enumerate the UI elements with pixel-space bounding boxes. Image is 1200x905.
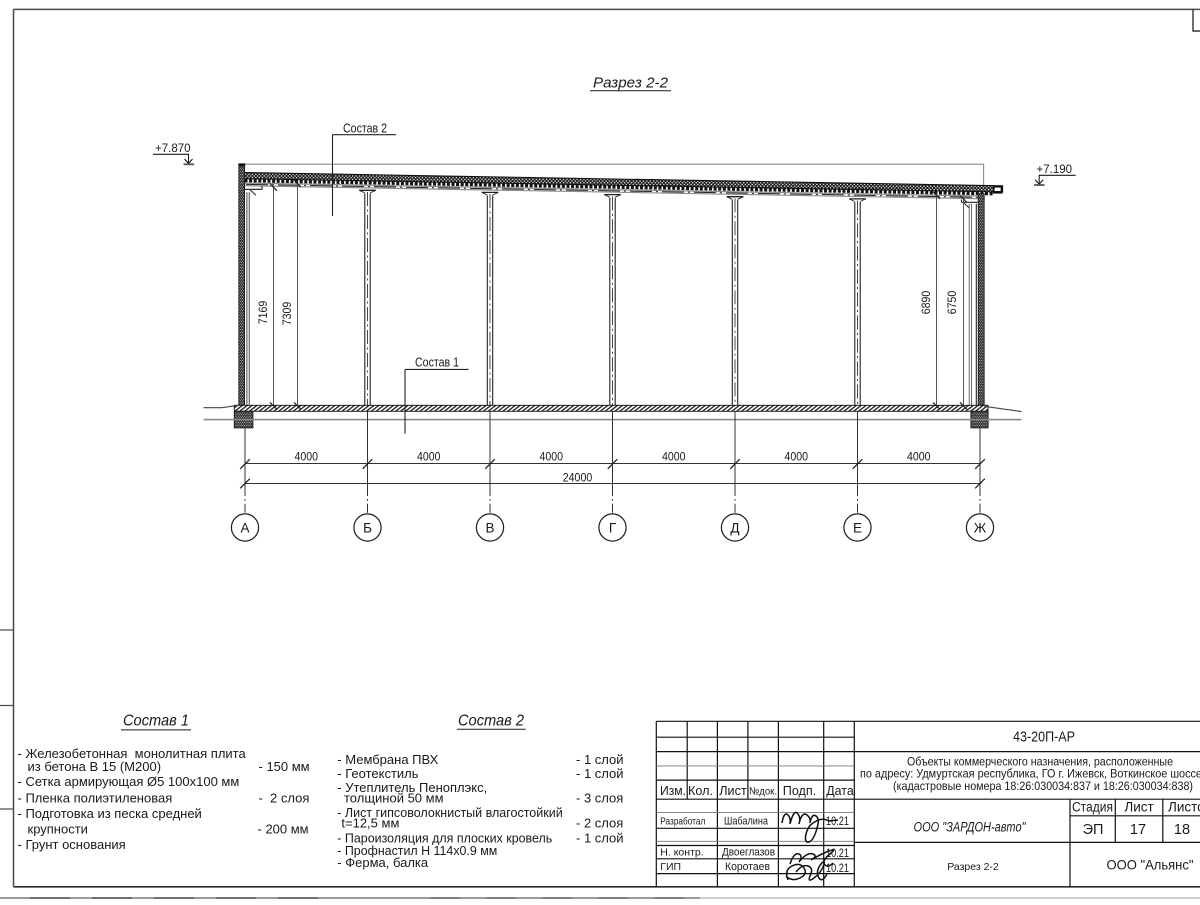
svg-text:- Геотекстиль: - Геотекстиль — [337, 766, 418, 781]
svg-text:- Мембрана ПВХ: - Мембрана ПВХ — [337, 752, 438, 767]
svg-text:- 1 слой: - 1 слой — [576, 831, 624, 846]
svg-text:7309: 7309 — [282, 302, 294, 326]
svg-text:Лист: Лист — [1124, 800, 1153, 815]
svg-text:Состав 2: Состав 2 — [458, 713, 524, 730]
svg-text:ЭП: ЭП — [1083, 822, 1104, 838]
svg-text:Д: Д — [730, 520, 739, 535]
svg-text:4000: 4000 — [785, 452, 809, 464]
svg-text:Листов: Листов — [1168, 800, 1200, 815]
svg-text:В: В — [485, 520, 494, 535]
svg-text:- 3 слоя: - 3 слоя — [576, 791, 623, 806]
svg-text:6890: 6890 — [921, 291, 933, 315]
svg-text:4000: 4000 — [662, 452, 686, 464]
svg-text:- 200 мм: - 200 мм — [258, 821, 309, 836]
svg-text:4000: 4000 — [540, 452, 564, 464]
svg-text:4000: 4000 — [907, 452, 931, 464]
svg-text:4000: 4000 — [417, 452, 441, 464]
svg-text:толщиной 50 мм: толщиной 50 мм — [344, 791, 444, 806]
svg-text:(кадастровые номера 18:26:0300: (кадастровые номера 18:26:030034:837 и 1… — [893, 779, 1193, 793]
svg-text:- 1 слой: - 1 слой — [576, 752, 624, 767]
svg-text:- 2 слоя: - 2 слоя — [259, 790, 310, 805]
svg-text:- Пленка полиэтиленовая: - Пленка полиэтиленовая — [18, 790, 173, 805]
svg-text:Изм.: Изм. — [660, 783, 686, 798]
svg-text:- Ферма, балка: - Ферма, балка — [337, 855, 429, 870]
svg-text:крупности: крупности — [28, 821, 88, 836]
svg-text:Стадия: Стадия — [1072, 800, 1113, 815]
svg-text:Шабалина: Шабалина — [724, 815, 769, 827]
svg-text:- Подготовка из песка средней: - Подготовка из песка средней — [18, 806, 202, 821]
svg-text:А: А — [240, 520, 249, 535]
svg-text:- 150 мм: - 150 мм — [259, 759, 310, 774]
svg-text:Состав 1: Состав 1 — [123, 713, 189, 730]
svg-text:- 1 слой: - 1 слой — [576, 766, 624, 781]
svg-text:4000: 4000 — [295, 452, 319, 464]
svg-text:Н. контр.: Н. контр. — [660, 847, 703, 859]
svg-text:Состав 1: Состав 1 — [415, 355, 459, 370]
svg-text:18: 18 — [1174, 822, 1190, 838]
svg-text:43-20П-АР: 43-20П-АР — [1013, 729, 1075, 746]
svg-text:№док.: №док. — [749, 786, 777, 798]
svg-text:ООО "Альянс": ООО "Альянс" — [1107, 857, 1194, 873]
svg-text:Разработал: Разработал — [660, 815, 705, 827]
svg-text:t=12,5 мм: t=12,5 мм — [341, 816, 399, 831]
svg-text:Дата: Дата — [826, 783, 854, 798]
svg-text:Кол.: Кол. — [688, 783, 713, 798]
svg-text:10.21: 10.21 — [826, 816, 849, 828]
svg-text:Подп.: Подп. — [783, 783, 817, 798]
svg-text:ГИП: ГИП — [660, 861, 681, 873]
svg-text:Разрез 2-2: Разрез 2-2 — [947, 861, 999, 873]
svg-text:6750: 6750 — [947, 291, 959, 315]
svg-text:- Грунт основания: - Грунт основания — [18, 837, 126, 852]
svg-text:Разрез 2-2: Разрез 2-2 — [593, 76, 668, 92]
svg-text:- 2 слоя: - 2 слоя — [576, 816, 623, 831]
svg-text:10.21: 10.21 — [826, 863, 849, 875]
svg-text:- Сетка армирующая Ø5 100х100: - Сетка армирующая Ø5 100х100 мм — [18, 774, 240, 789]
svg-text:+7.190: +7.190 — [1037, 164, 1073, 176]
svg-text:Коротаев: Коротаев — [725, 861, 770, 873]
svg-text:из бетона В 15 (М200): из бетона В 15 (М200) — [28, 759, 162, 774]
svg-text:Б: Б — [363, 520, 372, 535]
svg-text:Е: Е — [853, 520, 862, 535]
svg-text:24000: 24000 — [563, 472, 593, 484]
svg-text:Двоеглазов: Двоеглазов — [722, 847, 775, 859]
svg-text:7169: 7169 — [258, 301, 270, 325]
svg-text:17: 17 — [1130, 822, 1146, 838]
svg-text:Ж: Ж — [974, 520, 987, 535]
svg-text:ООО "ЗАРДОН-авто": ООО "ЗАРДОН-авто" — [914, 820, 1027, 835]
svg-text:Лист: Лист — [719, 783, 747, 798]
svg-text:Г: Г — [609, 520, 617, 535]
svg-text:Состав 2: Состав 2 — [343, 121, 387, 136]
svg-text:+7.870: +7.870 — [155, 143, 191, 155]
